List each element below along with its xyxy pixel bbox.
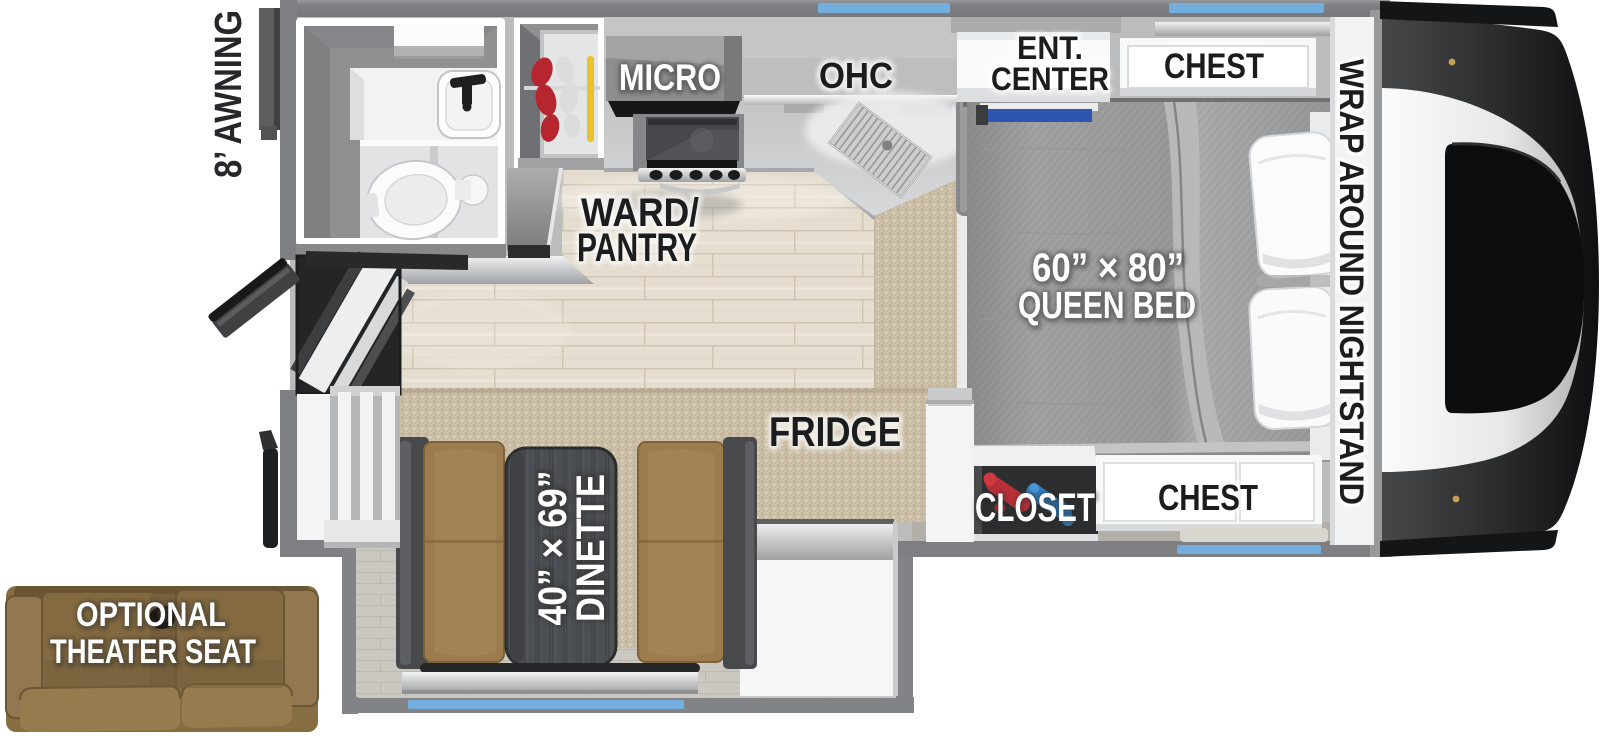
svg-text:OHC: OHC	[819, 55, 893, 96]
svg-text:CLOSET: CLOSET	[975, 486, 1095, 530]
svg-text:MICRO: MICRO	[619, 57, 721, 98]
svg-text:CENTER: CENTER	[991, 61, 1109, 97]
svg-text:THEATER SEAT: THEATER SEAT	[50, 633, 256, 671]
svg-text:DINETTE: DINETTE	[569, 474, 613, 622]
svg-text:PANTRY: PANTRY	[577, 226, 697, 270]
svg-text:8’ AWNING: 8’ AWNING	[208, 10, 250, 178]
svg-text:CHEST: CHEST	[1158, 477, 1258, 518]
svg-text:CHEST: CHEST	[1164, 47, 1264, 86]
svg-text:60” × 80”: 60” × 80”	[1032, 246, 1184, 290]
svg-text:QUEEN BED: QUEEN BED	[1018, 285, 1196, 327]
svg-text:OPTIONAL: OPTIONAL	[76, 596, 226, 634]
svg-text:WRAP AROUND NIGHTSTAND: WRAP AROUND NIGHTSTAND	[1332, 59, 1370, 505]
svg-text:FRIDGE: FRIDGE	[769, 408, 901, 455]
